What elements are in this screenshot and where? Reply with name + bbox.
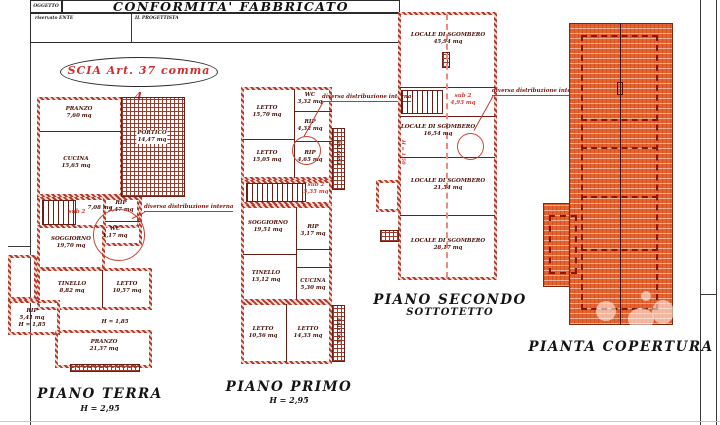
signature-box-divider [131,14,132,42]
room-label-primo-tinello: TINELLO 13,12 mq [252,270,281,284]
primo-partition-letto-letto [286,304,287,362]
room-area: 15,65 mq [62,163,91,170]
primo-height-label: H = 2,95 [269,395,308,405]
title-box: CONFORMITA' FABBRICATO [62,0,400,13]
terra-title: PIANO TERRA [37,386,163,402]
primo-stairs [246,183,306,202]
room-name: CUCINA [300,278,325,285]
room-label-primo-soggiorno: SOGGIORNO 19,51 mq [248,220,288,234]
room-name: TINELLO [58,281,86,288]
terra-annex-walls [8,255,37,300]
room-name: LOCALE DI SGOMBERO [411,238,485,245]
frame-left-tick [8,246,30,247]
sub-name: sub 2 [304,182,329,189]
room-area: 19,51 mq [248,227,288,234]
roof-ridge-line [620,23,621,325]
room-name: WC [298,92,323,99]
primo-sub-label: sub 2 5,35 mq [304,182,329,196]
room-area: 7,60 mq [66,113,93,120]
frame-left-line [30,0,31,425]
primo-title: PIANO PRIMO [226,379,353,395]
secondo-left-annex [376,180,400,212]
drawing-sheet: OGGETTO CONFORMITA' FABBRICATO riservato… [0,0,720,425]
roof-chimney [617,82,623,95]
primo-partition-v1 [294,89,295,178]
terra-portico-hatch [121,97,185,197]
room-label-secondo-loc4: LOCALE DI SGOMBERO 28,17 mq [411,238,485,252]
room-area: 10,57 mq [113,288,142,295]
secondo-h-note: H = 1,50 [400,140,406,165]
watermark-blob-2 [628,308,654,330]
room-label-primo-letto3: LETTO 10,56 mq [249,326,278,340]
room-height-note: H = 1,85 [18,322,45,329]
room-area: 15,05 mq [253,157,282,164]
room-name: LETTO [249,326,278,333]
progettista-label: IL PROGETTISTA [135,16,179,21]
oggetto-label: OGGETTO [31,1,61,13]
room-area: 3,32 mq [298,99,323,106]
terra-h-note: H = 1,85 [101,319,128,326]
terra-sub-label: sub 2 [69,209,86,216]
room-label-terra-cucina: CUCINA 15,65 mq [62,156,91,170]
room-label-secondo-loc1: LOCALE DI SGOMBERO 45,94 mq [411,32,485,46]
room-name: RIP [109,200,134,207]
room-area: 45,94 mq [411,39,485,46]
roof-dashed-seg-1 [581,119,658,121]
primo-balcony-bottom-label: BALCONE [335,318,340,344]
room-area: 14,33 mq [294,333,323,340]
terra-annotation: diversa distribuzione interna [144,204,233,212]
oggetto-box: OGGETTO [30,0,62,13]
room-label-primo-letto4: LETTO 14,33 mq [294,326,323,340]
primo-partition-wc-rip [294,111,332,112]
roof-dashed-seg-2 [581,147,658,149]
room-name: SOGGIORNO [248,220,288,227]
room-label-primo-wc: WC 3,32 mq [298,92,323,106]
room-label-secondo-loc3: LOCALE DI SGOMBERO 21,54 mq [411,178,485,192]
room-area: 8,82 mq [58,288,86,295]
room-label-terra-letto: LETTO 10,57 mq [113,281,142,295]
room-name: LETTO [253,150,282,157]
room-label-primo-letto1: LETTO 15,70 mq [253,105,282,119]
room-name: SOGGIORNO [51,236,91,243]
room-area: 5,30 mq [300,285,325,292]
room-label-terra-soggiorno: SOGGIORNO 19,70 mq [51,236,91,250]
primo-partition-rip3 [296,249,332,250]
primo-partition-cucina [296,267,332,268]
primo-partition-letto [243,139,294,140]
room-name: LETTO [113,281,142,288]
room-label-primo-letto2: LETTO 15,05 mq [253,150,282,164]
room-label-terra-pranzo2: PRANZO 21,37 mq [90,339,119,353]
room-name: PORTICO [136,130,167,137]
room-name: PRANZO [90,339,119,346]
sheet-bottom-edge [0,421,720,422]
copertura-title: PIANTA COPERTURA [528,339,713,355]
terra-height-label: H = 2,95 [80,403,119,413]
roof-dashed-seg-4 [581,249,658,251]
room-label-terra-portico: PORTICO 14,47 mq [136,130,167,144]
watermark-blob-3 [652,300,674,324]
room-area: 21,54 mq [411,185,485,192]
secondo-revision-circle [457,133,484,160]
room-label-terra-tinello: TINELLO 8,82 mq [58,281,86,295]
room-label-primo-rip3: RIP 3,17 mq [301,224,326,238]
scia-stamp-oval: SCIA Art. 37 comma 4 [60,57,218,87]
secondo-stairs [401,90,443,114]
room-area: 14,47 mq [136,137,167,144]
watermark-blob-4 [641,291,651,301]
frame-right-line [700,0,701,425]
terra-bottom-hatch [70,364,140,372]
room-name: RIP [18,308,45,315]
sheet-title: CONFORMITA' FABBRICATO [63,1,399,13]
room-area: 21,37 mq [90,346,119,353]
secondo-annotation: diversa distribuzione interna [492,88,581,96]
room-name: LETTO [253,105,282,112]
sub-name: sub 2 [451,93,476,100]
secondo-subtitle: SOTTOTETTO [406,307,493,318]
room-area: 10,56 mq [249,333,278,340]
watermark-blob-1 [596,301,616,321]
sub-area: 4,93 mq [451,100,476,107]
room-label-terra-rip2: RIP 5,41 mq H = 1,85 [18,308,45,329]
riservato-ente-label: riservato ENTE [35,16,73,21]
room-name: LOCALE DI SGOMBERO [411,178,485,185]
sub-area: 5,35 mq [304,189,329,196]
room-area: 4,32 mq [298,126,323,133]
room-name: LOCALE DI SGOMBERO [411,32,485,39]
room-area: 19,70 mq [51,243,91,250]
terra-revision-circle [93,209,145,261]
secondo-title: PIANO SECONDO [373,292,527,308]
room-name: LETTO [294,326,323,333]
primo-balcony-top-label: BALCONE [335,140,340,166]
frame-right-edge-line [716,0,717,425]
primo-revision-circle [292,136,321,165]
room-name: CUCINA [62,156,91,163]
secondo-left-stub-hatch [380,230,399,242]
roof-dashed-seg-3 [581,196,658,198]
room-label-terra-pranzo1: PRANZO 7,60 mq [66,106,93,120]
room-area: 3,17 mq [301,231,326,238]
terra-partition-pranzo-cucina [40,131,121,132]
room-area: 15,70 mq [253,112,282,119]
room-name: PRANZO [66,106,93,113]
room-name: LOCALE DI SGOMBERO [401,124,475,131]
room-area: 5,41 mq [18,315,45,322]
frame-right-tick [700,294,716,295]
room-area: 28,17 mq [411,245,485,252]
room-area: 13,12 mq [252,277,281,284]
secondo-sub-label: sub 2 4,93 mq [451,93,476,107]
room-name: TINELLO [252,270,281,277]
terra-partition-tinello-letto [102,270,103,308]
signature-box: riservato ENTE IL PROGETTISTA [30,13,400,43]
roof-extension-dashed-outline [549,215,577,274]
room-label-primo-cucina: CUCINA 5,30 mq [300,278,325,292]
primo-partition-sogg-tinello [243,254,297,255]
room-name: RIP [301,224,326,231]
